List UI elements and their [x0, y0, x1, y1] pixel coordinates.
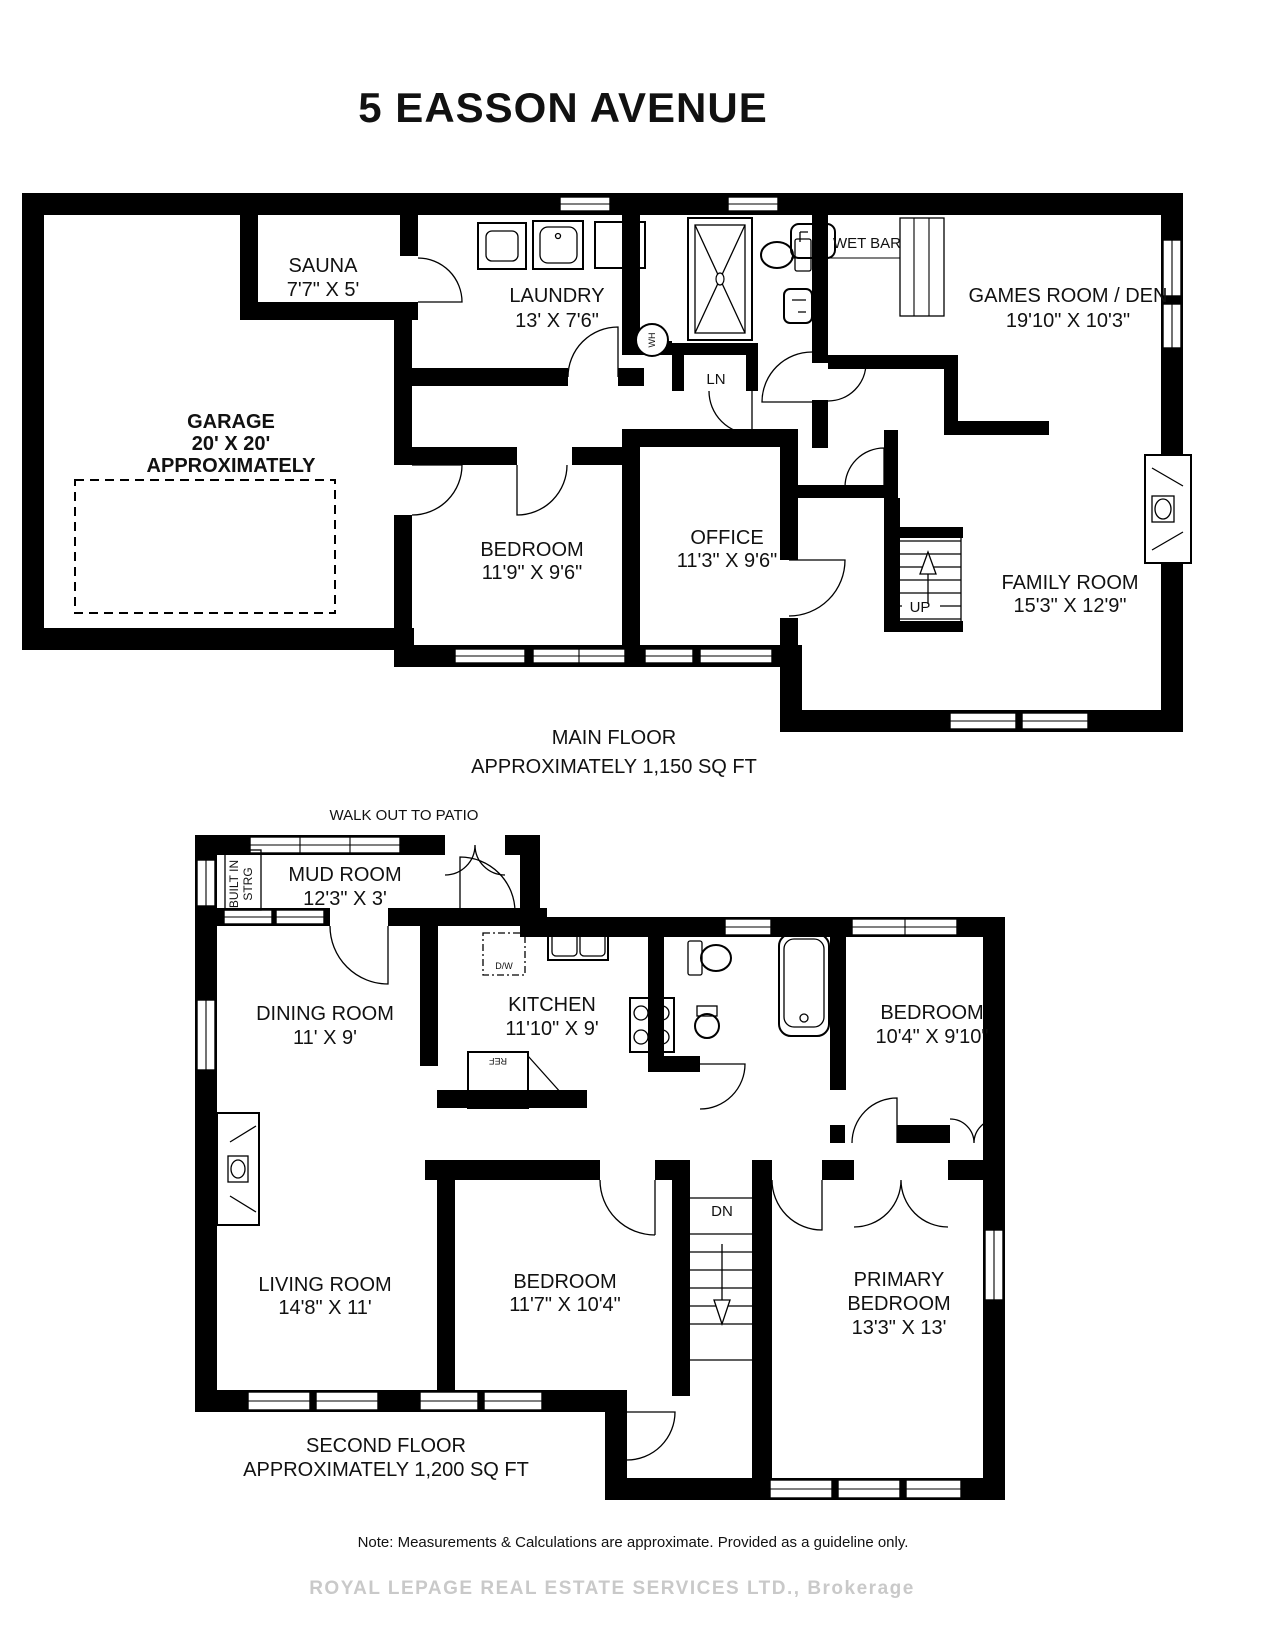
room-dims-bedroom-main: 11'9" X 9'6" — [482, 562, 582, 584]
footer-note: Note: Measurements & Calculations are ap… — [358, 1534, 909, 1551]
wet-bar-label: WET BAR — [833, 235, 901, 252]
room-dims-kitchen: 11'10" X 9' — [505, 1018, 598, 1040]
room-dims-office: 11'3" X 9'6" — [677, 550, 777, 572]
room-dims-mudroom: 12'3" X 3' — [303, 888, 387, 910]
room-note-garage: APPROXIMATELY — [147, 455, 317, 477]
room-label-mudroom: MUD ROOM — [288, 864, 401, 886]
room-label-bedroom-main: BEDROOM — [480, 539, 583, 561]
up-label: UP — [910, 599, 931, 616]
room-label-living: LIVING ROOM — [258, 1274, 391, 1296]
floorplan-canvas: 5 EASSON AVENUE — [0, 0, 1275, 1650]
room-label-laundry: LAUNDRY — [509, 285, 604, 307]
main-floor-caption: MAIN FLOOR — [552, 727, 676, 749]
room-dims-bedroom-middle: 11'7" X 10'4" — [509, 1294, 621, 1316]
ref-label: REF — [488, 1056, 507, 1066]
room-label-office: OFFICE — [690, 527, 763, 549]
fireplace — [1145, 455, 1191, 563]
room-dims-family: 15'3" X 12'9" — [1013, 595, 1126, 617]
room-label-family: FAMILY ROOM — [1001, 572, 1138, 594]
toilet — [795, 239, 811, 271]
room-label-bedroom-right: BEDROOM — [880, 1002, 983, 1024]
dn-label: DN — [711, 1203, 733, 1220]
ln-label: LN — [706, 371, 725, 388]
bath-sink — [784, 289, 812, 323]
dw-label: D/W — [495, 961, 513, 971]
footer: Note: Measurements & Calculations are ap… — [309, 1534, 915, 1599]
room-label-bedroom-middle: BEDROOM — [513, 1271, 616, 1293]
second-floor-labels: WALK OUT TO PATIO MUD ROOM 12'3" X 3' BU… — [227, 807, 989, 1481]
room-label-primary-1: PRIMARY — [854, 1269, 945, 1291]
room-dims-garage: 20' X 20' — [192, 433, 270, 455]
room-dims-bedroom-right: 10'4" X 9'10" — [875, 1026, 988, 1048]
room-label-kitchen: KITCHEN — [508, 994, 596, 1016]
room-dims-games: 19'10" X 10'3" — [1006, 310, 1130, 332]
room-label-primary-2: BEDROOM — [847, 1293, 950, 1315]
room-label-dining: DINING ROOM — [256, 1003, 394, 1025]
room-label-games: GAMES ROOM / DEN — [969, 285, 1168, 307]
second-floor-caption: SECOND FLOOR — [306, 1435, 466, 1457]
built-in-label-2: STRG — [241, 867, 255, 900]
room-dims-living: 14'8" X 11' — [278, 1297, 371, 1319]
built-in-label-1: BUILT IN — [227, 860, 241, 908]
room-dims-primary: 13'3" X 13' — [852, 1317, 947, 1339]
main-floor-caption2: APPROXIMATELY 1,150 SQ FT — [471, 756, 757, 778]
floorplan-page: 5 EASSON AVENUE — [0, 0, 1275, 1650]
living-fireplace — [217, 1113, 259, 1225]
walkout-label: WALK OUT TO PATIO — [330, 807, 479, 824]
room-dims-laundry: 13' X 7'6" — [515, 310, 599, 332]
bathtub — [779, 934, 829, 1036]
garage-door-outline — [75, 480, 335, 613]
room-label-sauna: SAUNA — [289, 255, 359, 277]
brokerage-watermark: ROYAL LEPAGE REAL ESTATE SERVICES LTD., … — [309, 1578, 915, 1599]
shower — [688, 218, 752, 340]
second-floor-caption2: APPROXIMATELY 1,200 SQ FT — [243, 1459, 529, 1481]
page-title: 5 EASSON AVENUE — [358, 84, 767, 131]
second-bathroom-fixtures — [688, 934, 829, 1038]
room-dims-sauna: 7'7" X 5' — [287, 279, 360, 301]
wh-label: WH — [647, 333, 657, 348]
room-dims-dining: 11' X 9' — [293, 1027, 357, 1049]
room-label-garage: GARAGE — [187, 411, 275, 433]
stairs-down — [690, 1198, 752, 1360]
